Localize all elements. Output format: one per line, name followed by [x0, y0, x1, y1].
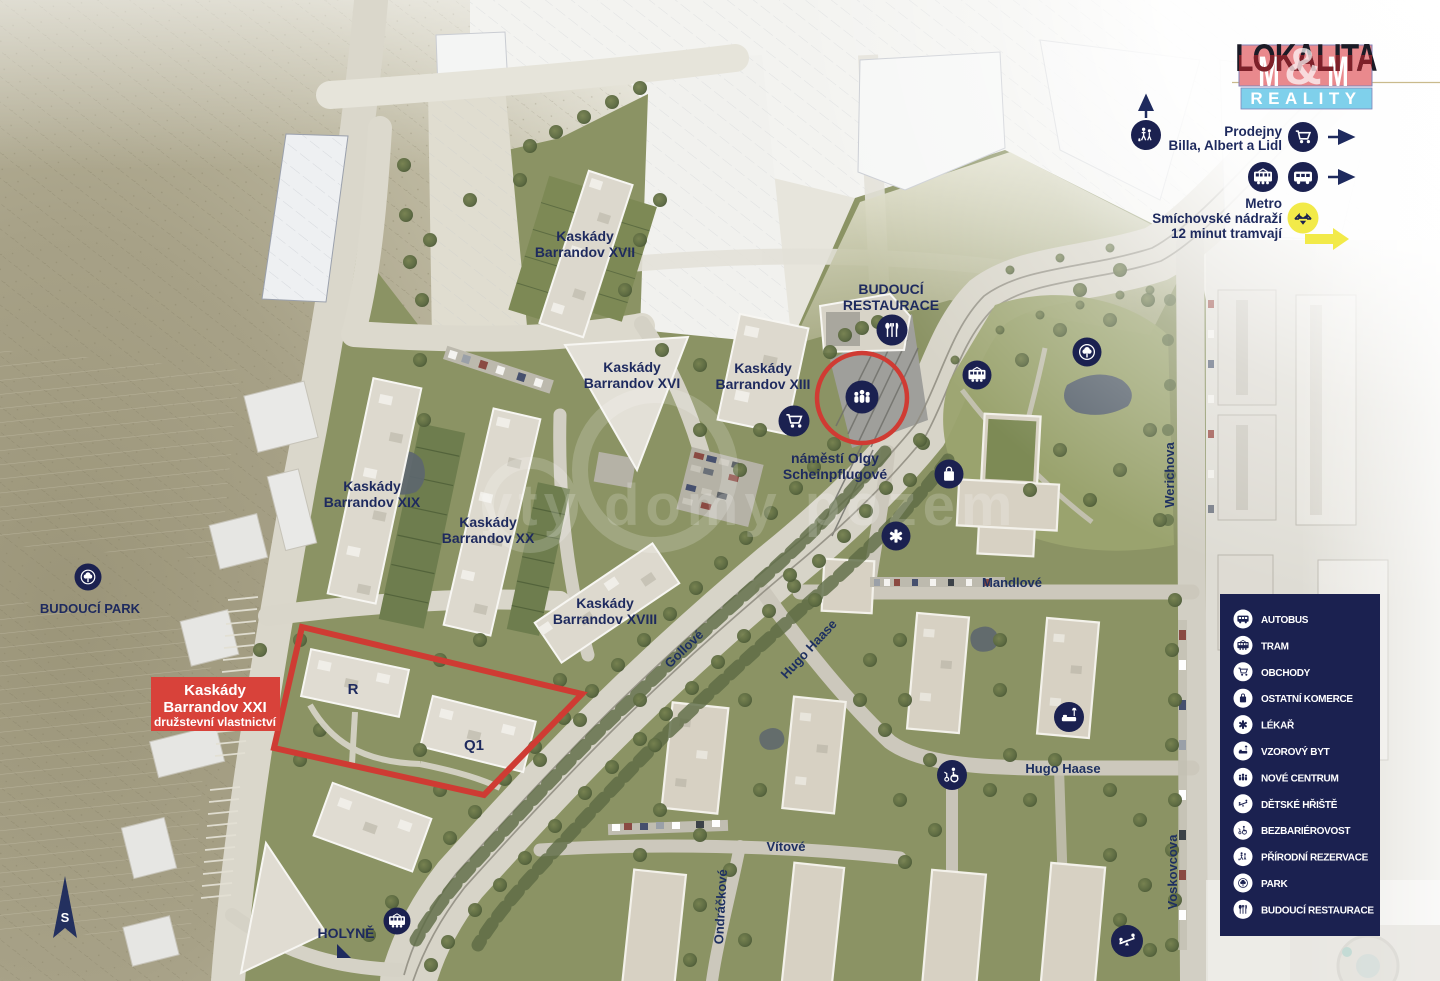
- svg-text:Barrandov XX: Barrandov XX: [442, 530, 535, 546]
- svg-text:PŘÍRODNÍ REZERVACE: PŘÍRODNÍ REZERVACE: [1261, 851, 1369, 864]
- svg-text:Billa, Albert a Lidl: Billa, Albert a Lidl: [1168, 138, 1282, 153]
- svg-text:OSTATNÍ KOMERCE: OSTATNÍ KOMERCE: [1261, 692, 1353, 705]
- svg-text:Prodejny: Prodejny: [1224, 124, 1282, 139]
- svg-text:Q1: Q1: [464, 737, 484, 754]
- svg-text:Smíchovské nádraží: Smíchovské nádraží: [1152, 211, 1283, 226]
- svg-text:LÉKAŘ: LÉKAŘ: [1261, 719, 1295, 732]
- svg-text:Vítové: Vítové: [766, 839, 805, 854]
- svg-text:TRAM: TRAM: [1261, 641, 1289, 652]
- svg-text:Kaskády: Kaskády: [556, 228, 614, 244]
- svg-text:Werichova: Werichova: [1162, 441, 1177, 507]
- svg-text:náměstí Olgy: náměstí Olgy: [791, 450, 879, 466]
- svg-text:12 minut tramvají: 12 minut tramvají: [1171, 226, 1283, 241]
- svg-text:BUDOUCÍ RESTAURACE: BUDOUCÍ RESTAURACE: [1261, 903, 1374, 916]
- svg-text:Barrandov XVIII: Barrandov XVIII: [553, 611, 657, 627]
- svg-text:Barrandov XVI: Barrandov XVI: [584, 375, 680, 391]
- svg-text:Barrandov XXI: Barrandov XXI: [163, 699, 266, 716]
- svg-text:Voskovcova: Voskovcova: [1165, 834, 1180, 910]
- svg-text:DĚTSKÉ HŘIŠTĚ: DĚTSKÉ HŘIŠTĚ: [1261, 798, 1338, 811]
- svg-text:BEZBARIÉROVOST: BEZBARIÉROVOST: [1261, 824, 1350, 837]
- svg-text:AUTOBUS: AUTOBUS: [1261, 615, 1309, 626]
- svg-text:&: &: [1284, 38, 1322, 96]
- svg-text:družstevní vlastnictví: družstevní vlastnictví: [154, 715, 277, 729]
- svg-text:Barrandov XIX: Barrandov XIX: [324, 494, 421, 510]
- svg-text:S: S: [61, 910, 70, 925]
- svg-text:BUDOUCÍ: BUDOUCÍ: [858, 281, 924, 297]
- svg-text:Kaskády: Kaskády: [343, 478, 401, 494]
- svg-text:REALITY: REALITY: [1250, 89, 1361, 108]
- svg-text:Kaskády: Kaskády: [184, 682, 246, 699]
- svg-text:Kaskády: Kaskády: [603, 359, 661, 375]
- svg-text:Barrandov XIII: Barrandov XIII: [716, 376, 811, 392]
- svg-text:RESTAURACE: RESTAURACE: [843, 297, 939, 313]
- svg-text:Hugo Haase: Hugo Haase: [1025, 761, 1100, 776]
- svg-text:HOLYNĚ: HOLYNĚ: [317, 924, 374, 941]
- svg-text:BUDOUCÍ PARK: BUDOUCÍ PARK: [40, 601, 141, 616]
- svg-text:R: R: [348, 681, 359, 698]
- svg-text:Mandlové: Mandlové: [982, 575, 1042, 590]
- svg-text:Kaskády: Kaskády: [576, 595, 634, 611]
- svg-text:NOVÉ CENTRUM: NOVÉ CENTRUM: [1261, 771, 1339, 784]
- svg-text:Kaskády: Kaskády: [459, 514, 517, 530]
- svg-text:OBCHODY: OBCHODY: [1261, 668, 1311, 679]
- svg-text:Barrandov XVII: Barrandov XVII: [535, 244, 635, 260]
- svg-text:Kaskády: Kaskády: [734, 360, 792, 376]
- svg-text:VZOROVÝ BYT: VZOROVÝ BYT: [1261, 745, 1330, 758]
- svg-text:PARK: PARK: [1261, 879, 1288, 890]
- svg-text:Scheinpflugové: Scheinpflugové: [783, 466, 887, 482]
- svg-text:Metro: Metro: [1245, 196, 1282, 211]
